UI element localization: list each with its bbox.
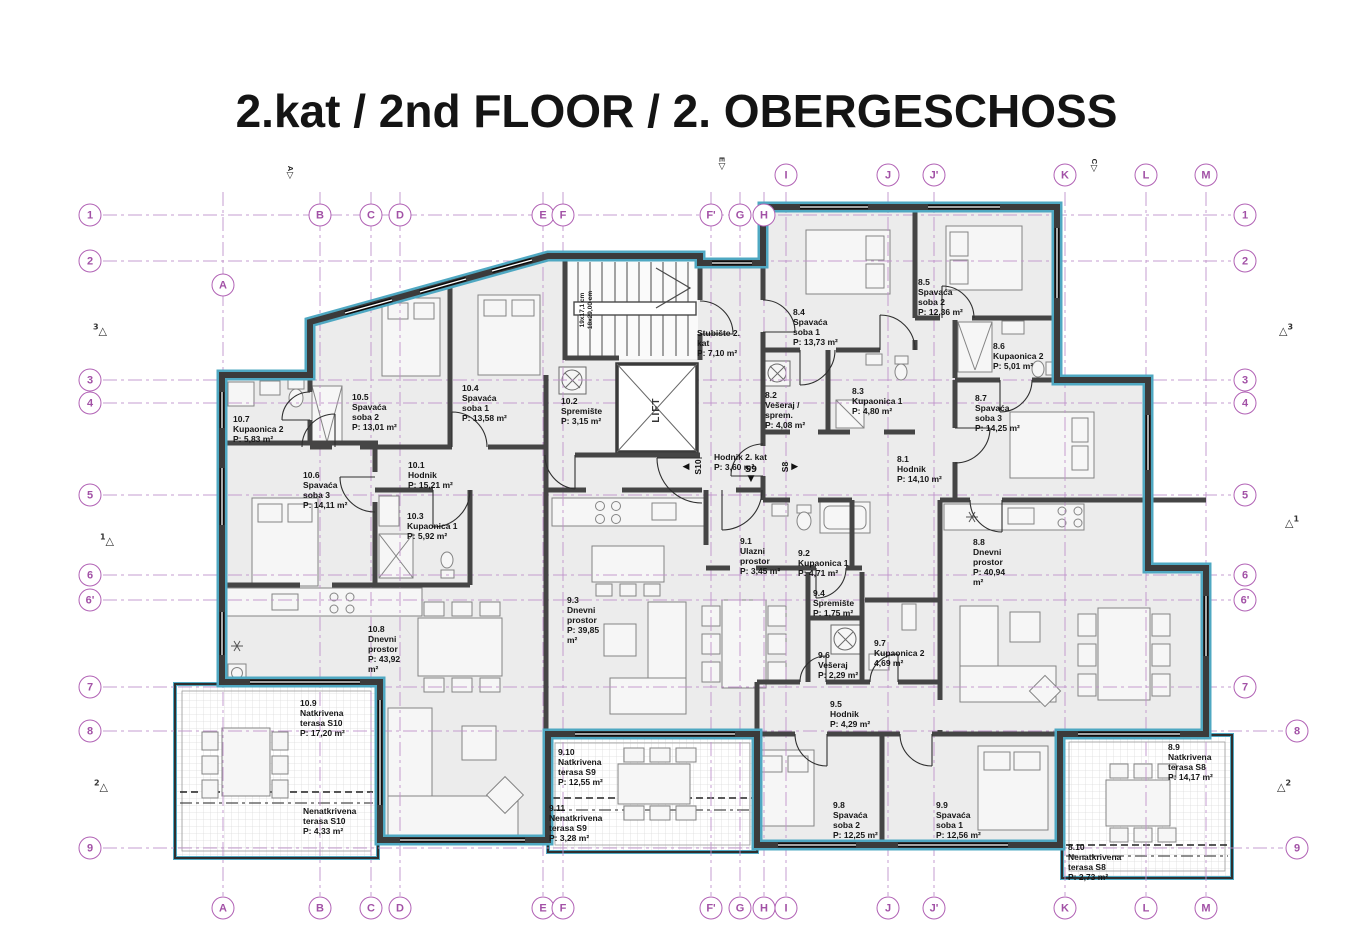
section-cut-s9: S9▼ — [745, 465, 757, 483]
room-label: 10.7Kupaonica 2P: 5,83 m² — [233, 414, 295, 444]
grid-bubble-F': F' — [700, 897, 723, 920]
grid-bubble-L: L — [1135, 164, 1158, 187]
room-label: 9.11Nenatkrivena terasa S9P: 3,28 m² — [549, 803, 615, 843]
grid-bubble-C: C — [360, 204, 383, 227]
grid-bubble-H: H — [753, 897, 776, 920]
grid-bubble-6': 6' — [79, 589, 102, 612]
grid-bubble-J: J — [877, 897, 900, 920]
grid-bubble-F: F — [552, 897, 575, 920]
section-flag-A: A▽ — [287, 165, 294, 180]
section-flag-C: C▽ — [1091, 158, 1098, 173]
section-cut-s10: ◀S10 — [682, 462, 705, 472]
grid-bubble-3: 3 — [79, 369, 102, 392]
grid-bubble-7: 7 — [1234, 676, 1257, 699]
room-label: 8.2Vešeraj / sprem.P: 4,08 m² — [765, 390, 811, 430]
section-level-marker: △1 — [1285, 515, 1299, 530]
grid-bubble-1: 1 — [1234, 204, 1257, 227]
grid-bubble-F: F — [552, 204, 575, 227]
grid-bubble-D: D — [389, 897, 412, 920]
section-level-marker: 2△ — [94, 779, 108, 794]
grid-bubble-3: 3 — [1234, 369, 1257, 392]
grid-bubble-C: C — [360, 897, 383, 920]
grid-bubble-2: 2 — [79, 250, 102, 273]
grid-bubble-2: 2 — [1234, 250, 1257, 273]
section-level-marker: 1△ — [100, 533, 114, 548]
floorplan-page: 2.kat / 2nd FLOOR / 2. OBERGESCHOSS — [0, 0, 1353, 948]
room-label: 8.6Kupaonica 2P: 5,01 m² — [993, 341, 1055, 371]
room-label: 9.9Spavaća soba 1P: 12,56 m² — [936, 800, 984, 840]
section-level-marker: △3 — [1279, 323, 1293, 338]
grid-bubble-9: 9 — [1286, 837, 1309, 860]
room-label: 10.6Spavaća soba 3P: 14,11 m² — [303, 470, 351, 510]
room-label: 9.5HodnikP: 4,29 m² — [830, 699, 892, 729]
room-label: 9.8Spavaća soba 2P: 12,25 m² — [833, 800, 881, 840]
room-label: 8.1HodnikP: 14,10 m² — [897, 454, 959, 484]
grid-bubble-A: A — [212, 274, 235, 297]
section-level-marker: △2 — [1277, 779, 1291, 794]
grid-bubble-H: H — [753, 204, 776, 227]
section-flag-E: E▽ — [719, 156, 726, 171]
grid-bubble-5: 5 — [1234, 484, 1257, 507]
grid-bubble-4: 4 — [79, 392, 102, 415]
grid-bubble-I: I — [775, 897, 798, 920]
room-label: 10.4Spavaća soba 1P: 13,58 m² — [462, 383, 510, 423]
room-label: 9.7Kupaonica 24,69 m² — [874, 638, 936, 668]
grid-bubble-8: 8 — [1286, 720, 1309, 743]
room-label: 10.1HodnikP: 15,21 m² — [408, 460, 470, 490]
grid-bubble-6: 6 — [79, 564, 102, 587]
room-label: 10.5Spavaća soba 2P: 13,01 m² — [352, 392, 400, 432]
lift-label: LIFT — [651, 397, 662, 422]
grid-bubble-G: G — [729, 897, 752, 920]
grid-bubble-L: L — [1135, 897, 1158, 920]
grid-bubble-5: 5 — [79, 484, 102, 507]
grid-bubble-J: J — [877, 164, 900, 187]
room-label: 10.8Dnevni prostorP: 43,92 m² — [368, 624, 412, 674]
section-level-marker: 3△ — [93, 323, 107, 338]
room-label: Stubište 2. katP: 7,10 m² — [697, 328, 749, 358]
grid-bubble-K: K — [1054, 897, 1077, 920]
grid-bubble-G: G — [729, 204, 752, 227]
grid-bubble-6: 6 — [1234, 564, 1257, 587]
grid-bubble-M: M — [1195, 164, 1218, 187]
floorplan-drawing: 19x17,1 cm 18x29,00 cm LIFT — [0, 0, 1353, 948]
wardrobe — [312, 386, 342, 442]
room-label: Nenatkrivena terasa S10P: 4,33 m² — [303, 806, 369, 836]
grid-bubble-D: D — [389, 204, 412, 227]
room-label: 9.3Dnevni prostorP: 39,85 m² — [567, 595, 611, 645]
grid-bubble-K: K — [1054, 164, 1077, 187]
grid-bubble-9: 9 — [79, 837, 102, 860]
grid-bubble-6': 6' — [1234, 589, 1257, 612]
grid-bubble-M: M — [1195, 897, 1218, 920]
grid-bubble-I: I — [775, 164, 798, 187]
grid-bubble-B: B — [309, 897, 332, 920]
grid-bubble-8: 8 — [79, 720, 102, 743]
room-label: 8.10Nenatkrivena terasa S8P: 2,73 m² — [1068, 842, 1134, 882]
grid-bubble-A: A — [212, 897, 235, 920]
room-label: 8.5Spavaća soba 2P: 12,36 m² — [918, 277, 966, 317]
grid-bubble-J': J' — [923, 164, 946, 187]
room-label: 8.8Dnevni prostorP: 40,94 m² — [973, 537, 1017, 587]
stair-dimension-2: 18x29,00 cm — [587, 291, 594, 330]
room-label: 8.4Spavaća soba 1P: 13,73 m² — [793, 307, 841, 347]
room-label: 10.2SpremišteP: 3,15 m² — [561, 396, 613, 426]
room-label: 9.1Ulazni prostorP: 3,45 m² — [740, 536, 784, 576]
room-label: 9.4SpremišteP: 1,75 m² — [813, 588, 865, 618]
section-cut-s8: S8▶ — [780, 462, 798, 472]
room-label: 10.3Kupaonica 1P: 5,92 m² — [407, 511, 469, 541]
room-label: 10.9Natkrivena terasa S10P: 17,20 m² — [300, 698, 358, 738]
room-label: 9.10Natkrivena terasa S9P: 12,55 m² — [558, 747, 614, 787]
grid-bubble-1: 1 — [79, 204, 102, 227]
grid-bubble-4: 4 — [1234, 392, 1257, 415]
room-label: 8.7Spavaća soba 3P: 14,25 m² — [975, 393, 1023, 433]
room-label: 8.9Natkrivena terasa S8P: 14,17 m² — [1168, 742, 1224, 782]
room-label: 9.2Kupaonica 1P: 4,71 m² — [798, 548, 860, 578]
room-label: 8.3Kupaonica 1P: 4,80 m² — [852, 386, 914, 416]
grid-bubble-F': F' — [700, 204, 723, 227]
room-label: 9.6VešerajP: 2,29 m² — [818, 650, 864, 680]
stair-dimension-1: 19x17,1 cm — [579, 292, 586, 327]
grid-bubble-7: 7 — [79, 676, 102, 699]
grid-bubble-B: B — [309, 204, 332, 227]
grid-bubble-J': J' — [923, 897, 946, 920]
